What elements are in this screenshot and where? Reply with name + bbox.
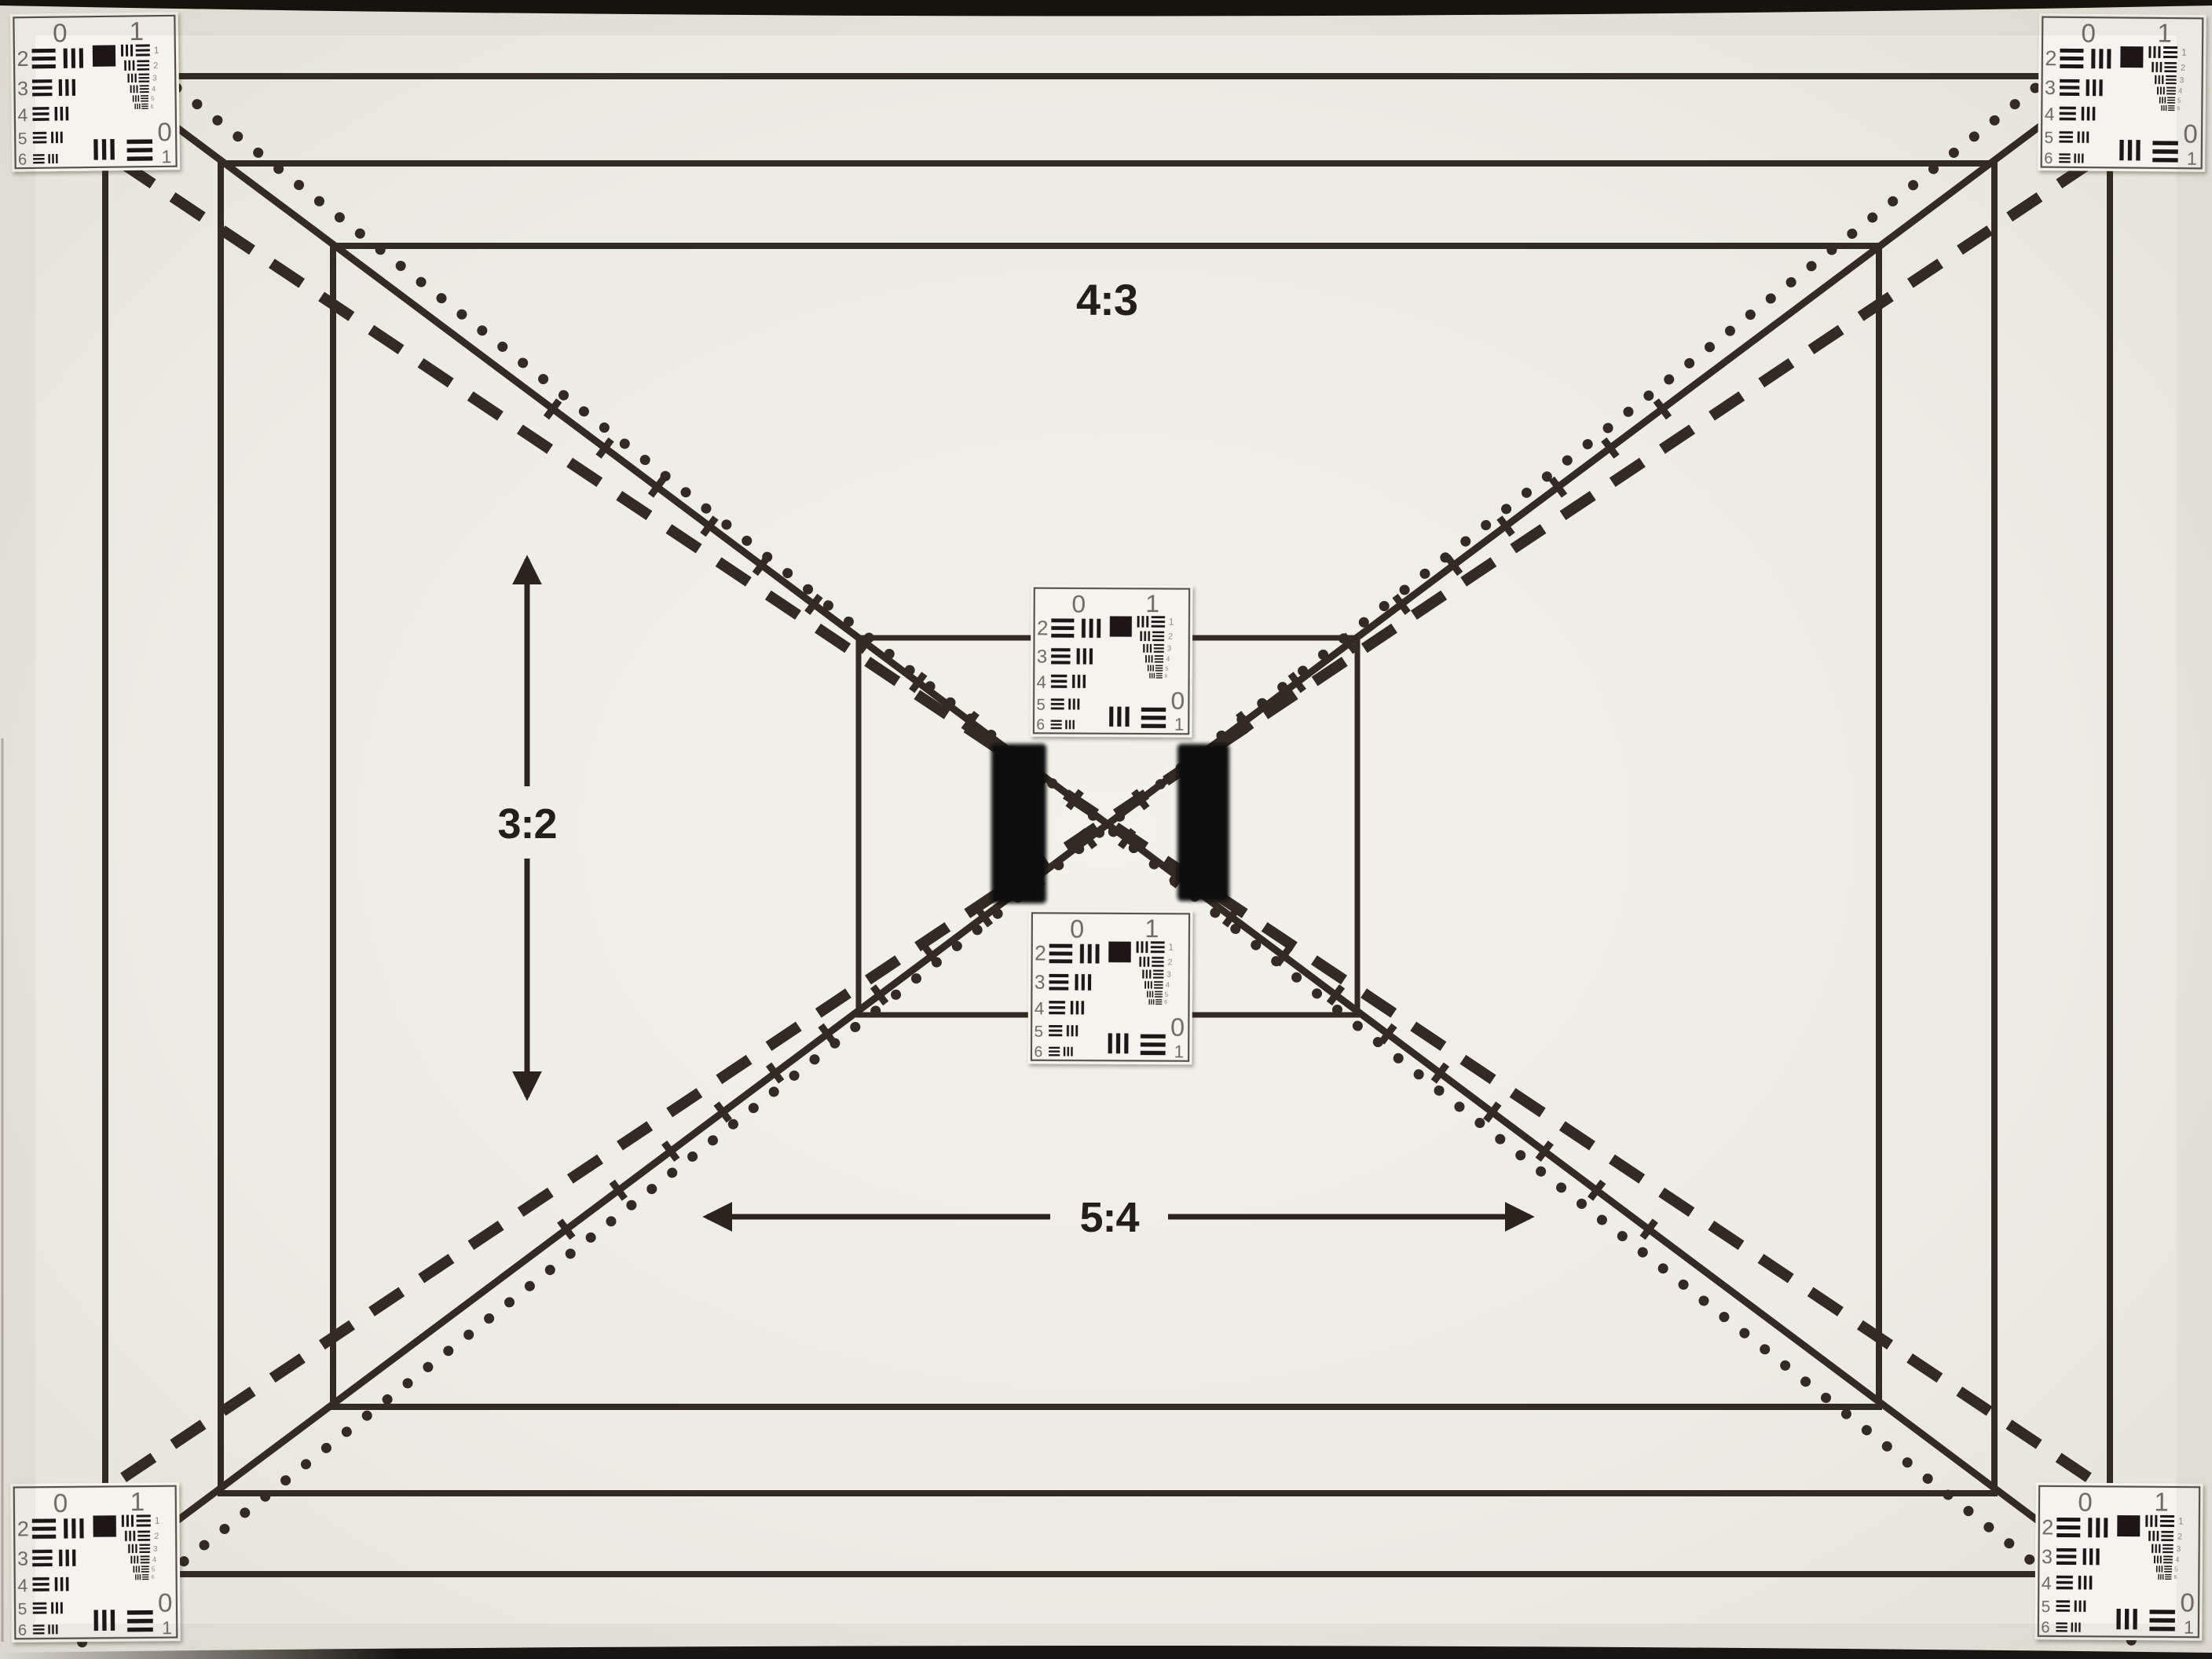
resolution-target-top-left [10,12,180,172]
aspect-label-5-4: 5:4 [1079,1194,1139,1241]
resolution-target-bottom-left [10,1482,181,1643]
aspect-label-3-2: 3:2 [497,800,556,848]
velcro-patch-right [1177,744,1229,901]
resolution-target-center-upper [1030,584,1192,738]
resolution-target-center-lower [1027,910,1192,1064]
velcro-patch-left [991,744,1046,903]
aspect-label-4-3: 4:3 [1076,275,1137,324]
lens-test-chart-photo: 0 1 2 3 4 5 6 1 2 [0,0,2212,1659]
